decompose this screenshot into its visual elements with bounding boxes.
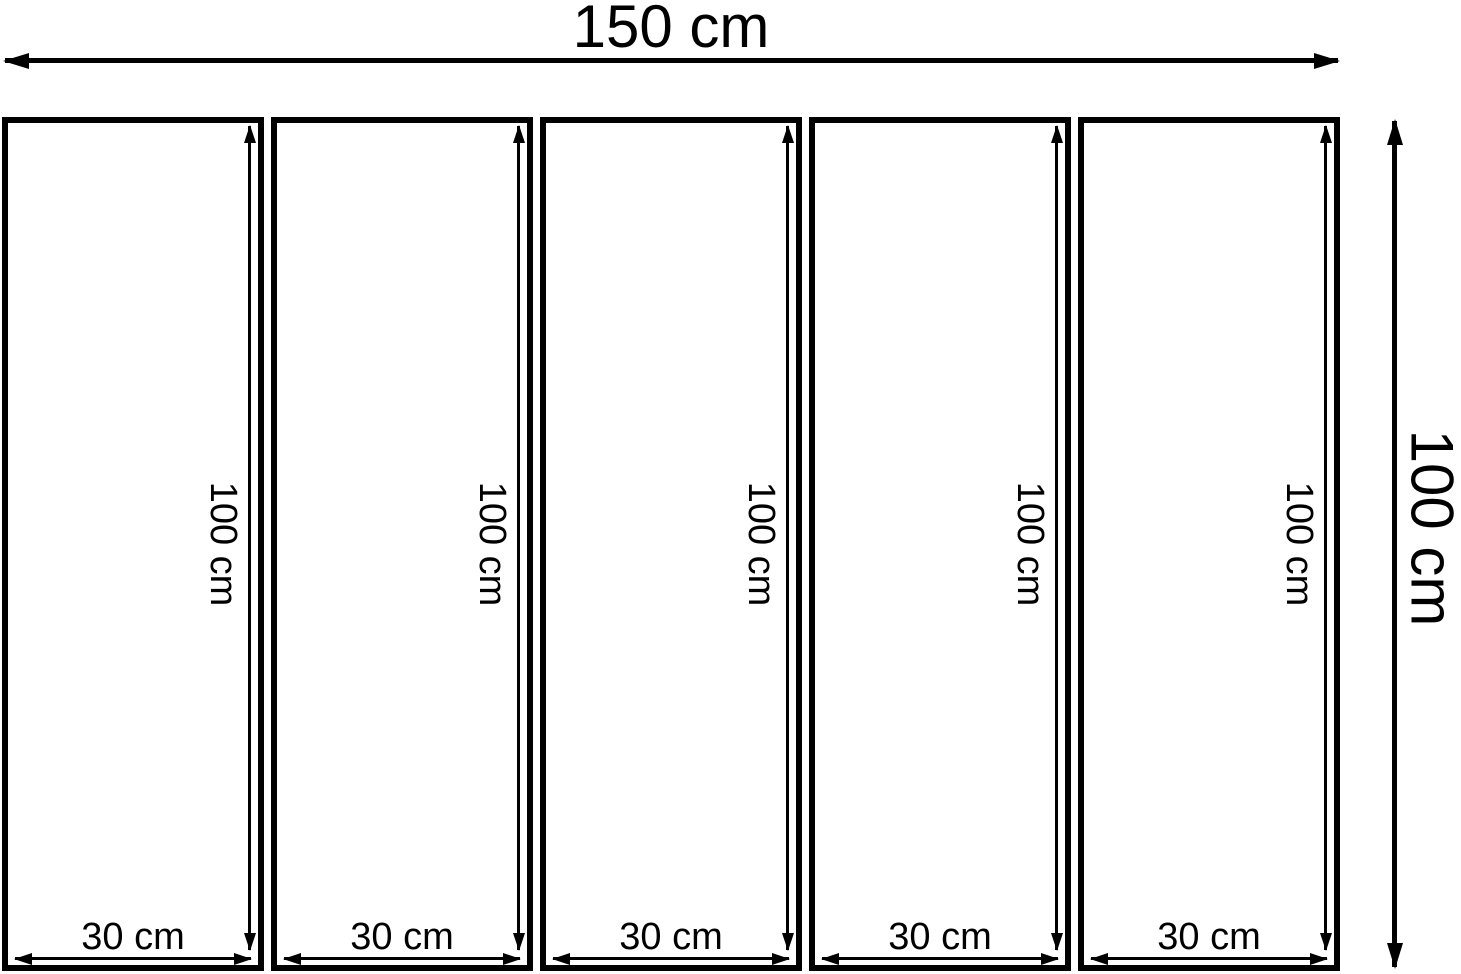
panel-height-arrow [786,126,789,950]
panel-height-label: 100 cm [1009,482,1052,607]
panel-3: 100 cm 30 cm [540,117,802,971]
panel-width-label: 30 cm [619,916,722,959]
panel-width-label: 30 cm [1157,916,1260,959]
panel-width-arrow [1091,957,1327,960]
panel-height-label: 100 cm [471,482,514,607]
panel-height-arrow [517,126,520,950]
total-width-arrow [5,58,1338,63]
panel-width-label: 30 cm [350,916,453,959]
panel-2: 100 cm 30 cm [271,117,533,971]
panel-4: 100 cm 30 cm [809,117,1071,971]
panel-height-label: 100 cm [1278,482,1321,607]
panel-1: 100 cm 30 cm [2,117,264,971]
panel-width-arrow [284,957,520,960]
panel-height-arrow [1324,126,1327,950]
panel-height-arrow [1055,126,1058,950]
total-height-arrow [1392,121,1397,967]
panel-width-label: 30 cm [888,916,991,959]
total-width-label: 150 cm [573,0,770,61]
panel-height-label: 100 cm [740,482,783,607]
panel-height-label: 100 cm [202,482,245,607]
panel-width-arrow [15,957,251,960]
panel-width-label: 30 cm [81,916,184,959]
panel-height-arrow [248,126,251,950]
total-height-label: 100 cm [1398,430,1461,627]
panel-width-arrow [822,957,1058,960]
panel-dimension-diagram: 150 cm 100 cm 100 cm 30 cm 100 cm 30 cm … [0,0,1461,974]
panel-5: 100 cm 30 cm [1078,117,1340,971]
panel-width-arrow [553,957,789,960]
